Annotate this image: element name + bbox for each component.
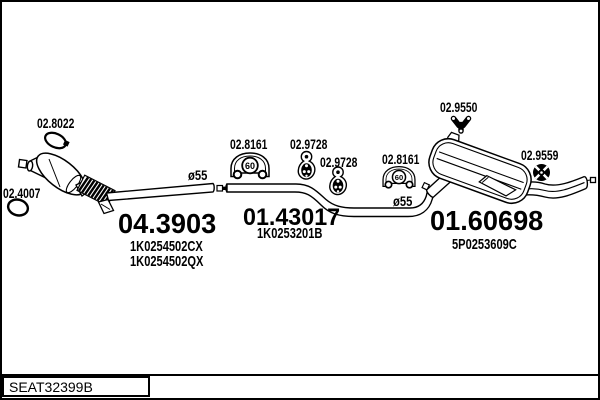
- part-label-grommet-rear: 02.9559: [521, 148, 558, 162]
- pipe-clamp-60-icon: [231, 153, 269, 178]
- oe-code-front-1: 1K0254502CX: [130, 239, 203, 254]
- assembly-code-rear: 01.60698: [430, 207, 543, 235]
- oe-code-middle: 1K0253201B: [257, 226, 322, 241]
- part-label-ring-front: 02.4007: [3, 186, 40, 200]
- oe-code-front-2: 1K0254502QX: [130, 254, 203, 269]
- exhaust-line-art: 60: [0, 0, 600, 400]
- part-label-hanger-rear: 02.9550: [440, 100, 477, 114]
- part-label-hanger-1: 02.9728: [290, 137, 327, 151]
- part-label-hanger-2: 02.9728: [320, 155, 357, 169]
- diameter-label-rear: ø55: [393, 194, 412, 208]
- rubber-grommet-icon: [533, 164, 550, 181]
- part-label-gasket-front: 02.8022: [37, 116, 74, 130]
- y-rubber-mount-icon: [452, 117, 470, 132]
- gasket-ring-icon: [43, 130, 71, 153]
- rubber-hanger-icon: [330, 167, 347, 195]
- part-label-clamp-1: 02.8161: [230, 137, 267, 151]
- assembly-code-front: 04.3903: [118, 210, 216, 238]
- oe-code-rear: 5P0253609C: [452, 237, 517, 252]
- rear-muffler-drawing: [424, 128, 538, 208]
- exhaust-parts-diagram: 60: [0, 0, 600, 400]
- sheet-code-box: SEAT32399B: [2, 376, 150, 397]
- pipe-clamp-60-icon: [383, 167, 415, 188]
- rubber-hanger-icon: [298, 152, 315, 180]
- sheet-code: SEAT32399B: [9, 380, 93, 394]
- diameter-label-front: ø55: [188, 168, 207, 182]
- part-label-clamp-2: 02.8161: [382, 152, 419, 166]
